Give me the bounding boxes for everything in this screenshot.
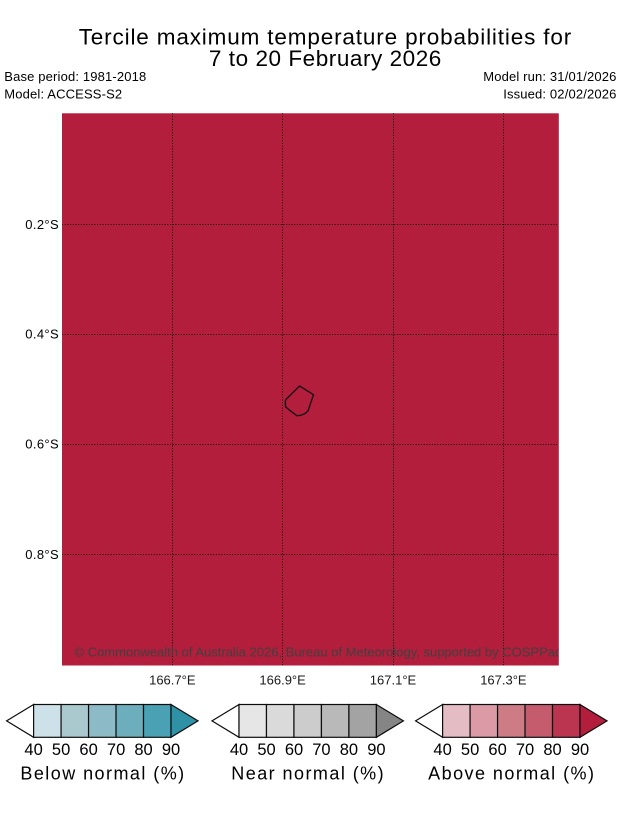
svg-text:Model: ACCESS-S2: Model: ACCESS-S2 [4, 87, 122, 102]
svg-text:166.7°E: 166.7°E [149, 672, 196, 687]
svg-text:Base period: 1981-2018: Base period: 1981-2018 [4, 69, 146, 84]
svg-text:80: 80 [340, 741, 358, 759]
svg-text:© Commonwealth of Australia 20: © Commonwealth of Australia 2026, Bureau… [75, 645, 562, 660]
svg-text:70: 70 [107, 741, 125, 759]
svg-text:0.2°S: 0.2°S [25, 217, 59, 232]
svg-text:90: 90 [571, 741, 589, 759]
svg-text:7 to 20 February 2026: 7 to 20 February 2026 [209, 46, 442, 71]
svg-text:70: 70 [516, 741, 534, 759]
svg-text:Above normal (%): Above normal (%) [428, 764, 595, 784]
svg-text:40: 40 [24, 741, 42, 759]
svg-text:Model run: 31/01/2026: Model run: 31/01/2026 [483, 69, 616, 84]
svg-text:167.1°E: 167.1°E [370, 672, 417, 687]
svg-text:50: 50 [52, 741, 70, 759]
svg-text:60: 60 [79, 741, 97, 759]
svg-text:0.8°S: 0.8°S [25, 547, 59, 562]
svg-text:80: 80 [134, 741, 152, 759]
svg-text:Below normal (%): Below normal (%) [20, 764, 185, 784]
svg-text:40: 40 [433, 741, 451, 759]
svg-text:Issued: 02/02/2026: Issued: 02/02/2026 [503, 87, 616, 102]
svg-text:Near normal (%): Near normal (%) [231, 764, 385, 784]
svg-text:40: 40 [230, 741, 248, 759]
svg-text:50: 50 [257, 741, 275, 759]
svg-text:0.4°S: 0.4°S [25, 327, 59, 342]
svg-text:167.3°E: 167.3°E [480, 672, 527, 687]
svg-text:90: 90 [162, 741, 180, 759]
svg-text:90: 90 [367, 741, 385, 759]
svg-text:60: 60 [285, 741, 303, 759]
svg-text:80: 80 [543, 741, 561, 759]
svg-text:0.6°S: 0.6°S [25, 437, 59, 452]
svg-text:60: 60 [488, 741, 506, 759]
svg-text:50: 50 [461, 741, 479, 759]
svg-text:70: 70 [312, 741, 330, 759]
svg-text:166.9°E: 166.9°E [259, 672, 306, 687]
